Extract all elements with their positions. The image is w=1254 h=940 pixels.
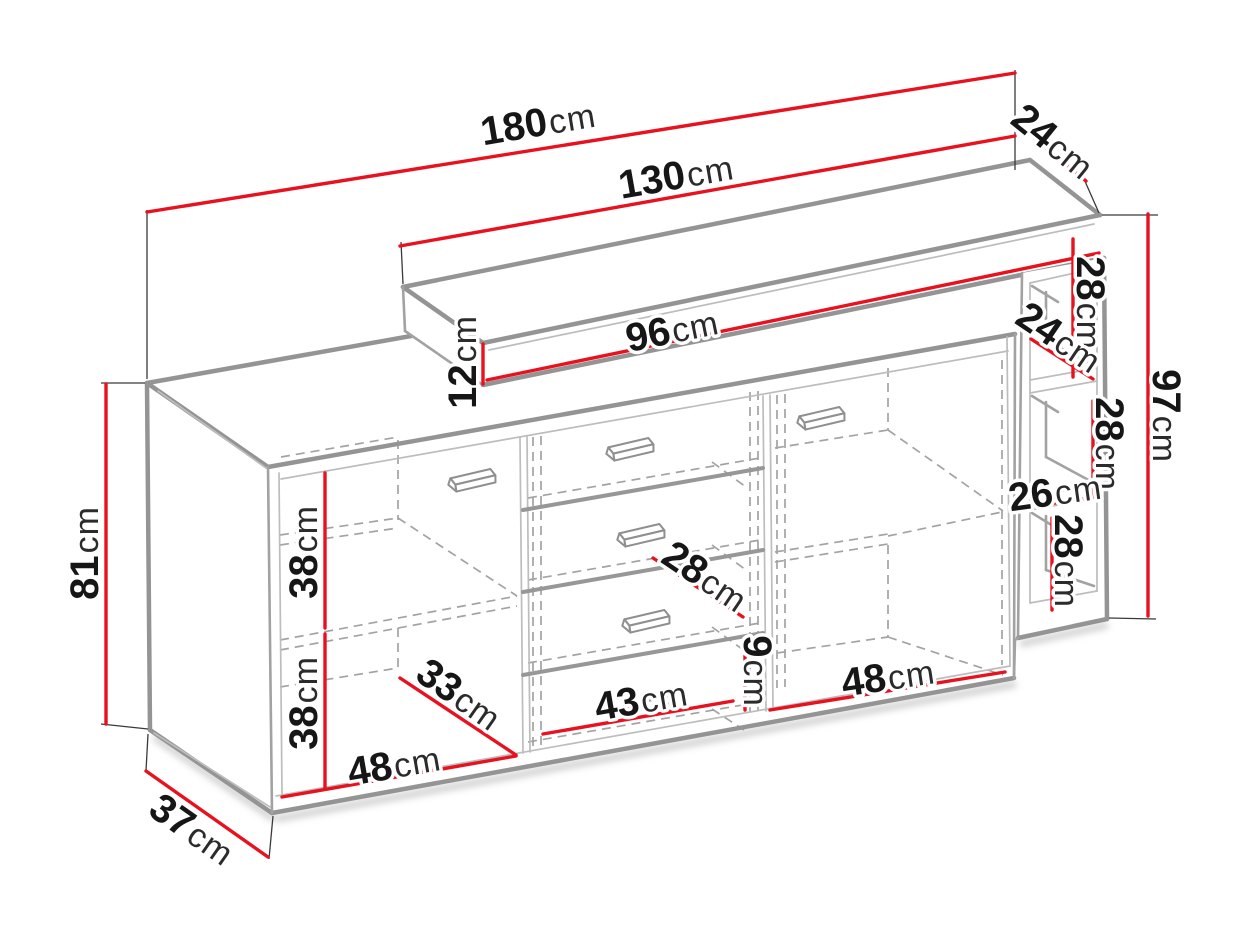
dim-label-left-lower-height: 38cm	[282, 656, 326, 750]
furniture-dimension-diagram: 180cm 24cm 130cm 96cm 12cm 28cm 24cm 97c…	[0, 0, 1254, 940]
dim-label-side-opening-3-height: 28cm	[1046, 514, 1090, 608]
dim-label-left-upper-height: 38cm	[282, 505, 326, 599]
dim-label-upper-shelf-height: 12cm	[441, 315, 485, 409]
diagram-canvas: 180cm 24cm 130cm 96cm 12cm 28cm 24cm 97c…	[0, 0, 1254, 940]
dim-label-right-section-height: 97cm	[1144, 369, 1188, 463]
dim-label-total-width: 180cm	[477, 92, 599, 155]
dim-label-upper-section-width: 130cm	[615, 144, 737, 207]
dim-label-body-height: 81cm	[63, 506, 107, 600]
dim-label-plinth-height: 9cm	[735, 635, 779, 707]
